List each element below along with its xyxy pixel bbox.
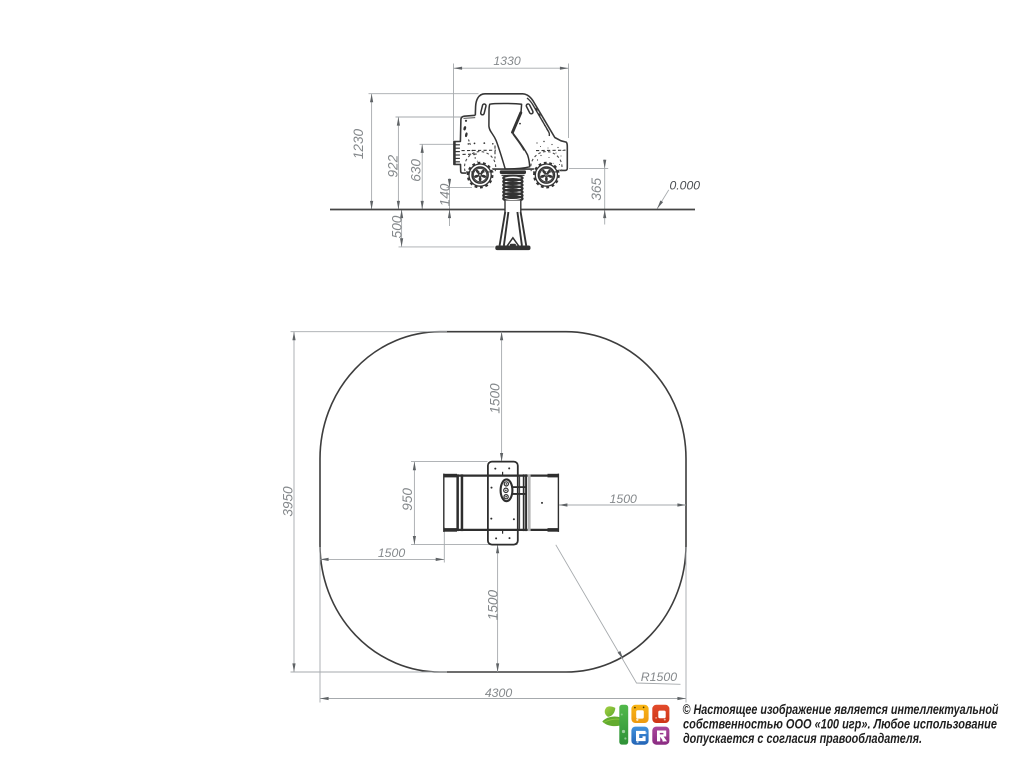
svg-text:1500: 1500 [488, 383, 503, 414]
svg-text:© Настоящее изображение являет: © Настоящее изображение является интелле… [683, 702, 999, 717]
svg-text:собственностью ООО «100 игр».: собственностью ООО «100 игр». Любое испо… [683, 717, 997, 732]
svg-text:365: 365 [589, 178, 604, 201]
svg-text:1500: 1500 [378, 546, 406, 560]
svg-text:922: 922 [386, 154, 401, 177]
svg-text:950: 950 [400, 488, 415, 511]
svg-text:140: 140 [438, 183, 453, 206]
svg-text:R1500: R1500 [641, 670, 677, 684]
svg-text:630: 630 [409, 159, 424, 182]
svg-text:500: 500 [390, 215, 405, 238]
svg-text:1230: 1230 [351, 128, 366, 159]
svg-text:допускается с согласия правооб: допускается с согласия правообладателя. [683, 731, 922, 746]
svg-text:1500: 1500 [610, 492, 638, 506]
svg-text:4300: 4300 [485, 686, 513, 700]
svg-text:1330: 1330 [493, 54, 521, 68]
svg-text:0.000: 0.000 [670, 179, 701, 193]
svg-text:3950: 3950 [281, 486, 296, 517]
svg-text:1500: 1500 [486, 590, 501, 621]
